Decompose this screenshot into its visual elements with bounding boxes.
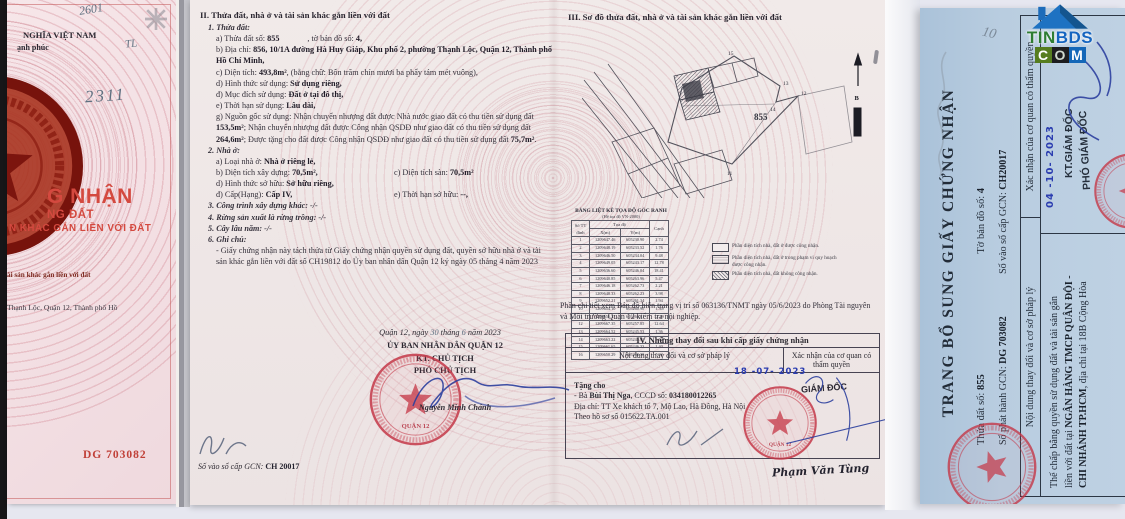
coord-row: 21209648.19605233.521.76 [572,244,669,252]
legend-item-recognized: Phần diện tích nhà, đất ở được công nhận… [712,243,844,252]
coord-row: 41209649.05605243.1712.78 [572,260,669,268]
chairman-name: Nguyễn Minh Chánh [395,403,515,412]
map-note: Phần chi tiết xem Bản đồ hiện trạng vị t… [560,301,878,322]
gift-entry: Tặng cho - Bà Bùi Thị Nga, CCCD số: 0341… [574,381,745,423]
cadastral-map: 15 13 14 12 11 855 B [582,46,872,198]
area-line: c) Diện tích: 493,8m², (bằng chữ: Bốn tr… [216,67,552,78]
logo-com-row: C O M [1012,47,1108,63]
section-3-heading: III. Sơ đồ thửa đất, nhà ở và tài sản kh… [568,12,868,22]
page-edge-gap [176,0,190,507]
handwritten-initials: TL [124,37,137,50]
house-ownership-line: d) Hình thức sở hữu: Sở hữu riêng, [216,178,552,189]
coordinate-table-subtitle: (Hệ tọa độ VN-2000) [571,214,671,219]
spread-right-edge [885,0,920,510]
legend-item-planning: Phần diện tích nhà, đất ở trong phạm vi … [712,255,844,268]
supplement-rotated-content: TRANG BỔ SUNG GIẤY CHỨNG NHẬN Thửa đất s… [920,8,1125,503]
coord-row: 51209636.60605246.0418.41 [572,267,669,275]
coord-row: 81209648.33605262.233.98 [572,290,669,298]
forest-line: 4. Rừng sản xuất là rừng trồng: -/- [208,212,552,223]
svg-text:855: 855 [754,112,768,122]
svg-text:15: 15 [728,51,734,57]
handwritten-day: 30 [430,328,438,337]
legend-swatch-stipple [712,255,729,264]
legend-swatch-hatch [712,271,729,280]
supplement-title: TRANG BỔ SUNG GIẤY CHỨNG NHẬN [940,33,958,473]
cover-motto-line: ạnh phúc [17,43,49,52]
coord-row: 31209646.50605234.049.48 [572,252,669,260]
logo-text-row: TINBDS [1012,29,1108,46]
photo-of-land-certificate: NGHĨA VIỆT NAM ạnh phúc 2601 TL 2311 G N… [0,0,1125,519]
photo-dark-edge [0,0,7,519]
map-legend: Phần diện tích nhà, đất ở được công nhận… [712,243,844,283]
logo-bds: BDS [1056,29,1093,46]
cover-serial-number: DG 703082 [83,449,147,461]
legend-swatch-plain [712,243,729,252]
svg-text:13: 13 [783,81,789,87]
svg-text:14: 14 [770,107,776,113]
director-signature [785,352,885,467]
section-2-parcel-details: II. Thửa đất, nhà ở và tài sản khác gắn … [200,10,552,267]
clerk-initials [194,420,254,465]
svg-text:11: 11 [727,171,733,177]
corner-ornament-icon [143,8,169,30]
cover-sub-line: ài sản khác gắn liền với đất [7,271,90,279]
chairman-signature [405,348,575,438]
svg-text:12: 12 [801,91,807,97]
cover-title-1: G NHẬN [47,185,133,209]
house-subheading: 2. Nhà ở: [208,145,552,156]
cover-address-line: Thạnh Lộc, Quận 12, Thành phố Hồ [7,303,117,312]
supplement-seal [1093,152,1125,230]
section-4-title: IV. Những thay đổi sau khi cấp giấy chứn… [566,334,879,348]
logo-o: O [1052,47,1069,63]
certificate-cover-page: NGHĨA VIỆT NAM ạnh phúc 2601 TL 2311 G N… [7,0,176,504]
issue-date-line: Quận 12, ngày 30 tháng 6 năm 2023 [330,328,550,337]
legend-item-not-recognized: Phần diện tích nhà, đất không công nhận. [712,271,844,280]
registrar-initials [661,421,731,451]
coord-row: 61209640.85605263.965.47 [572,275,669,283]
supplement-column-divider [1041,233,1125,234]
logo-tin: TIN [1027,29,1056,46]
parcel-number-line: a) Thửa đất số: 855, tờ bản đồ số: 4, [216,33,552,44]
house-area-line: b) Diện tích xây dựng: 70,5m², c) Diện t… [216,167,552,178]
supplement-page: 10 TRANG BỔ SUNG GIẤY CHỨNG NHẬN Thửa đấ… [920,8,1125,504]
supplement-corner-seal [946,421,1038,504]
book-entry-line: Số vào sổ cấp GCN: CH 20017 [198,462,299,471]
use-term-line: e) Thời hạn sử dụng: Lâu dài, [216,100,552,111]
tinbds-watermark-logo: TINBDS C O M [1012,2,1108,62]
notes-text: - Giấy chứng nhận này tách thửa từ Giấy … [216,245,552,267]
use-form-line: d) Hình thức sử dụng: Sử dụng riêng, [216,78,552,89]
coord-row: 11209647.46605230.902.74 [572,237,669,245]
handwritten-number-mid: 2311 [84,85,126,108]
notes-subheading: 6. Ghi chú: [208,234,552,245]
house-grade-line: đ) Cấp(Hạng): Cấp IV, e) Thời hạn sở hữu… [216,189,552,200]
origin-line: g) Nguồn gốc sử dụng: Nhận chuyển nhượng… [216,111,552,144]
certificate-inner-spread: II. Thửa đất, nhà ở và tài sản khác gắn … [190,0,885,505]
perennial-line: 5. Cây lâu năm: -/- [208,223,552,234]
supplement-serial-line: Số phát hành GCN: DG 703082 Số vào sổ cấ… [998,15,1009,445]
cover-title-2: NG ĐẤT [47,209,94,221]
mortgage-entry: Thế chấp bằng quyền sử dụng đất và tài s… [1048,240,1092,488]
cover-title-3: N KHÁC GẮN LIỀN VỚI ĐẤT [9,223,151,234]
supplement-parcel-line: Thửa đất số: 855 Tờ bản đồ số: 4 [976,25,987,445]
parcel-subheading: 1. Thửa đất: [208,22,552,33]
use-purpose-line: đ) Mục đích sử dụng: Đất ở tại đô thị, [216,89,552,100]
other-works-line: 3. Công trình xây dựng khác: -/- [208,200,552,211]
svg-text:B: B [855,95,860,102]
house-icon [1023,2,1097,31]
address-line: b) Địa chỉ: 856, 10/1A đường Hà Huy Giáp… [216,44,552,66]
supplement-body: Thế chấp bằng quyền sử dụng đất và tài s… [1041,16,1125,496]
section-2-heading: II. Thửa đất, nhà ở và tài sản khác gắn … [200,10,552,22]
logo-c: C [1035,47,1052,63]
logo-m: M [1069,47,1086,63]
cover-nation-line: NGHĨA VIỆT NAM [23,30,96,40]
coord-row: 71209646.18605262.732.21 [572,283,669,291]
house-type-line: a) Loại nhà ở: Nhà ở riêng lẻ, [216,156,552,167]
